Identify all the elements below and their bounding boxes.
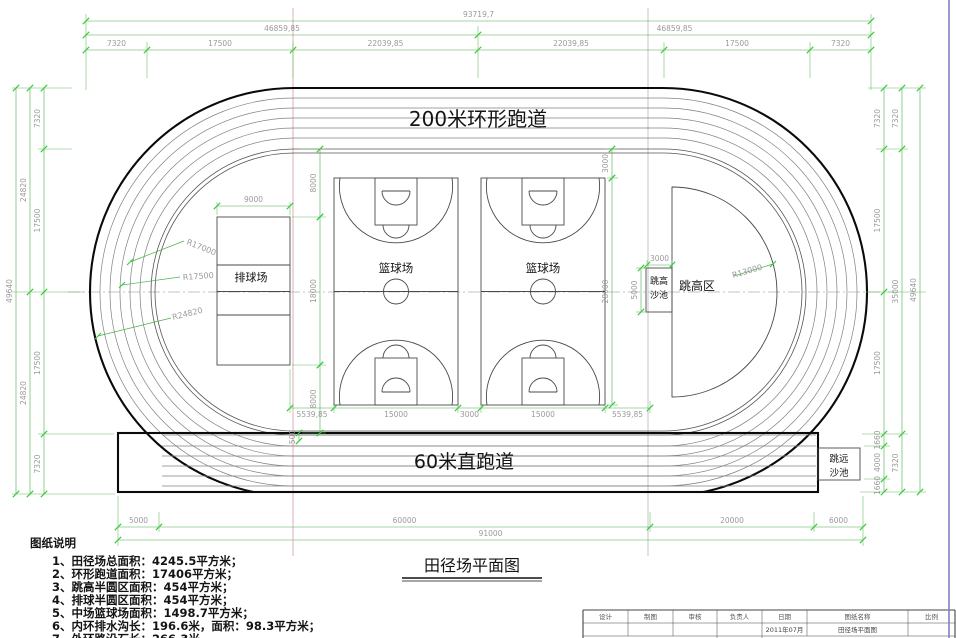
titleblock-header-draft: 制图 bbox=[644, 612, 657, 621]
dim-label: 17500 bbox=[873, 351, 882, 375]
dim-label: 93719,7 bbox=[463, 10, 494, 19]
paper-background bbox=[0, 0, 956, 638]
dim-label: 9000 bbox=[244, 195, 263, 204]
dim-label: 60000 bbox=[393, 516, 417, 525]
note-item: 5、中场篮球场面积：1498.7平方米； bbox=[52, 606, 254, 620]
note-item: 6、内环排水沟长：196.6米，面积：98.3平方米； bbox=[52, 619, 320, 633]
note-item: 1、田径场总面积：4245.5平方米； bbox=[52, 554, 242, 568]
dim-label: 24820 bbox=[19, 178, 28, 202]
titleblock-header-scale: 比例 bbox=[925, 612, 938, 621]
titleblock-header-review: 审核 bbox=[689, 612, 703, 621]
basketball-court-2-label: 篮球场 bbox=[526, 261, 561, 275]
titleblock-header-lead: 负责人 bbox=[730, 612, 750, 621]
dim-label: 7320 bbox=[873, 109, 882, 128]
dim-label: 5000 bbox=[630, 280, 639, 299]
dim-label: 8000 bbox=[309, 173, 318, 192]
long-jump-pit-label-1: 跳远 bbox=[829, 453, 849, 465]
note-item: 4、排球半圆区面积：454平方米； bbox=[52, 593, 234, 607]
dim-label: 3000 bbox=[460, 410, 479, 419]
dim-label: 17500 bbox=[33, 208, 42, 232]
dim-label: 500 bbox=[288, 430, 297, 445]
dim-label: 8000 bbox=[309, 389, 318, 408]
dim-label: 7320 bbox=[107, 39, 126, 48]
high-jump-pit-label-1: 跳高 bbox=[650, 275, 668, 287]
titleblock-header-date: 日期 bbox=[778, 613, 792, 621]
dim-label: 49640 bbox=[5, 279, 14, 303]
dim-label: 7320 bbox=[891, 109, 900, 128]
dim-label: 15000 bbox=[384, 410, 408, 419]
dim-label: 18000 bbox=[309, 279, 318, 303]
dim-label: 4000 bbox=[873, 453, 882, 472]
dim-label: 24820 bbox=[19, 381, 28, 405]
dim-label: 22039,85 bbox=[368, 39, 404, 48]
dim-label: 15000 bbox=[531, 410, 555, 419]
dim-label: 17500 bbox=[873, 208, 882, 232]
dim-label: 7320 bbox=[891, 453, 900, 472]
dim-label: 17500 bbox=[725, 39, 749, 48]
ring-track-label: 200米环形跑道 bbox=[409, 107, 547, 131]
titleblock-date-value: 2011年07月 bbox=[766, 625, 804, 634]
dim-label: 7320 bbox=[831, 39, 850, 48]
dim-label: 17500 bbox=[208, 39, 232, 48]
dim-label: 17500 bbox=[33, 351, 42, 375]
dim-label: 5000 bbox=[129, 516, 148, 525]
long-jump-pit-label-2: 沙池 bbox=[829, 467, 849, 479]
drawing-title-text: 田径场平面图 bbox=[424, 556, 520, 575]
note-item: 2、环形跑道面积：17406平方米； bbox=[52, 567, 238, 581]
note-item: 3、跳高半圆区面积：454平方米； bbox=[52, 580, 234, 594]
dim-label: 28000 bbox=[601, 279, 610, 303]
notes-heading: 图纸说明 bbox=[30, 536, 76, 550]
straight-track-label: 60米直跑道 bbox=[414, 451, 514, 473]
dim-label: 20000 bbox=[720, 516, 744, 525]
drawing-canvas: 200米环形跑道 60米直跑道 篮球场 篮球场 排球场 跳高区 跳高 沙池 跳远… bbox=[0, 0, 956, 638]
dim-label: 46859,85 bbox=[657, 24, 693, 33]
basketball-court-1-label: 篮球场 bbox=[379, 261, 414, 275]
dim-label: 5539,85 bbox=[612, 410, 643, 419]
note-item: 7、外环路沿石长：266.3米. bbox=[52, 632, 204, 638]
dim-label: 3000 bbox=[601, 154, 610, 173]
titleblock-header-design: 设计 bbox=[599, 612, 613, 621]
dim-label: 22039,85 bbox=[553, 39, 589, 48]
dim-label: 35000 bbox=[891, 279, 900, 303]
dim-label: 7320 bbox=[33, 454, 42, 473]
high-jump-area-label: 跳高区 bbox=[679, 278, 715, 293]
volleyball-court-label: 排球场 bbox=[235, 270, 268, 284]
dim-label: 49640 bbox=[909, 278, 918, 302]
dim-label: 5539,85 bbox=[296, 410, 327, 419]
dim-label: 3000 bbox=[650, 254, 669, 263]
dim-label: 91000 bbox=[479, 529, 503, 538]
titleblock-header-name: 图纸名称 bbox=[845, 612, 872, 621]
dim-label: 1660 bbox=[873, 430, 882, 449]
cad-viewport: 200米环形跑道 60米直跑道 篮球场 篮球场 排球场 跳高区 跳高 沙池 跳远… bbox=[0, 0, 956, 638]
titleblock-name-value: 田径场平面图 bbox=[838, 625, 877, 634]
dim-label: 6000 bbox=[829, 516, 848, 525]
dim-label: 7320 bbox=[33, 109, 42, 128]
dim-label: 46859,85 bbox=[264, 24, 300, 33]
high-jump-pit-label-2: 沙池 bbox=[650, 289, 668, 301]
